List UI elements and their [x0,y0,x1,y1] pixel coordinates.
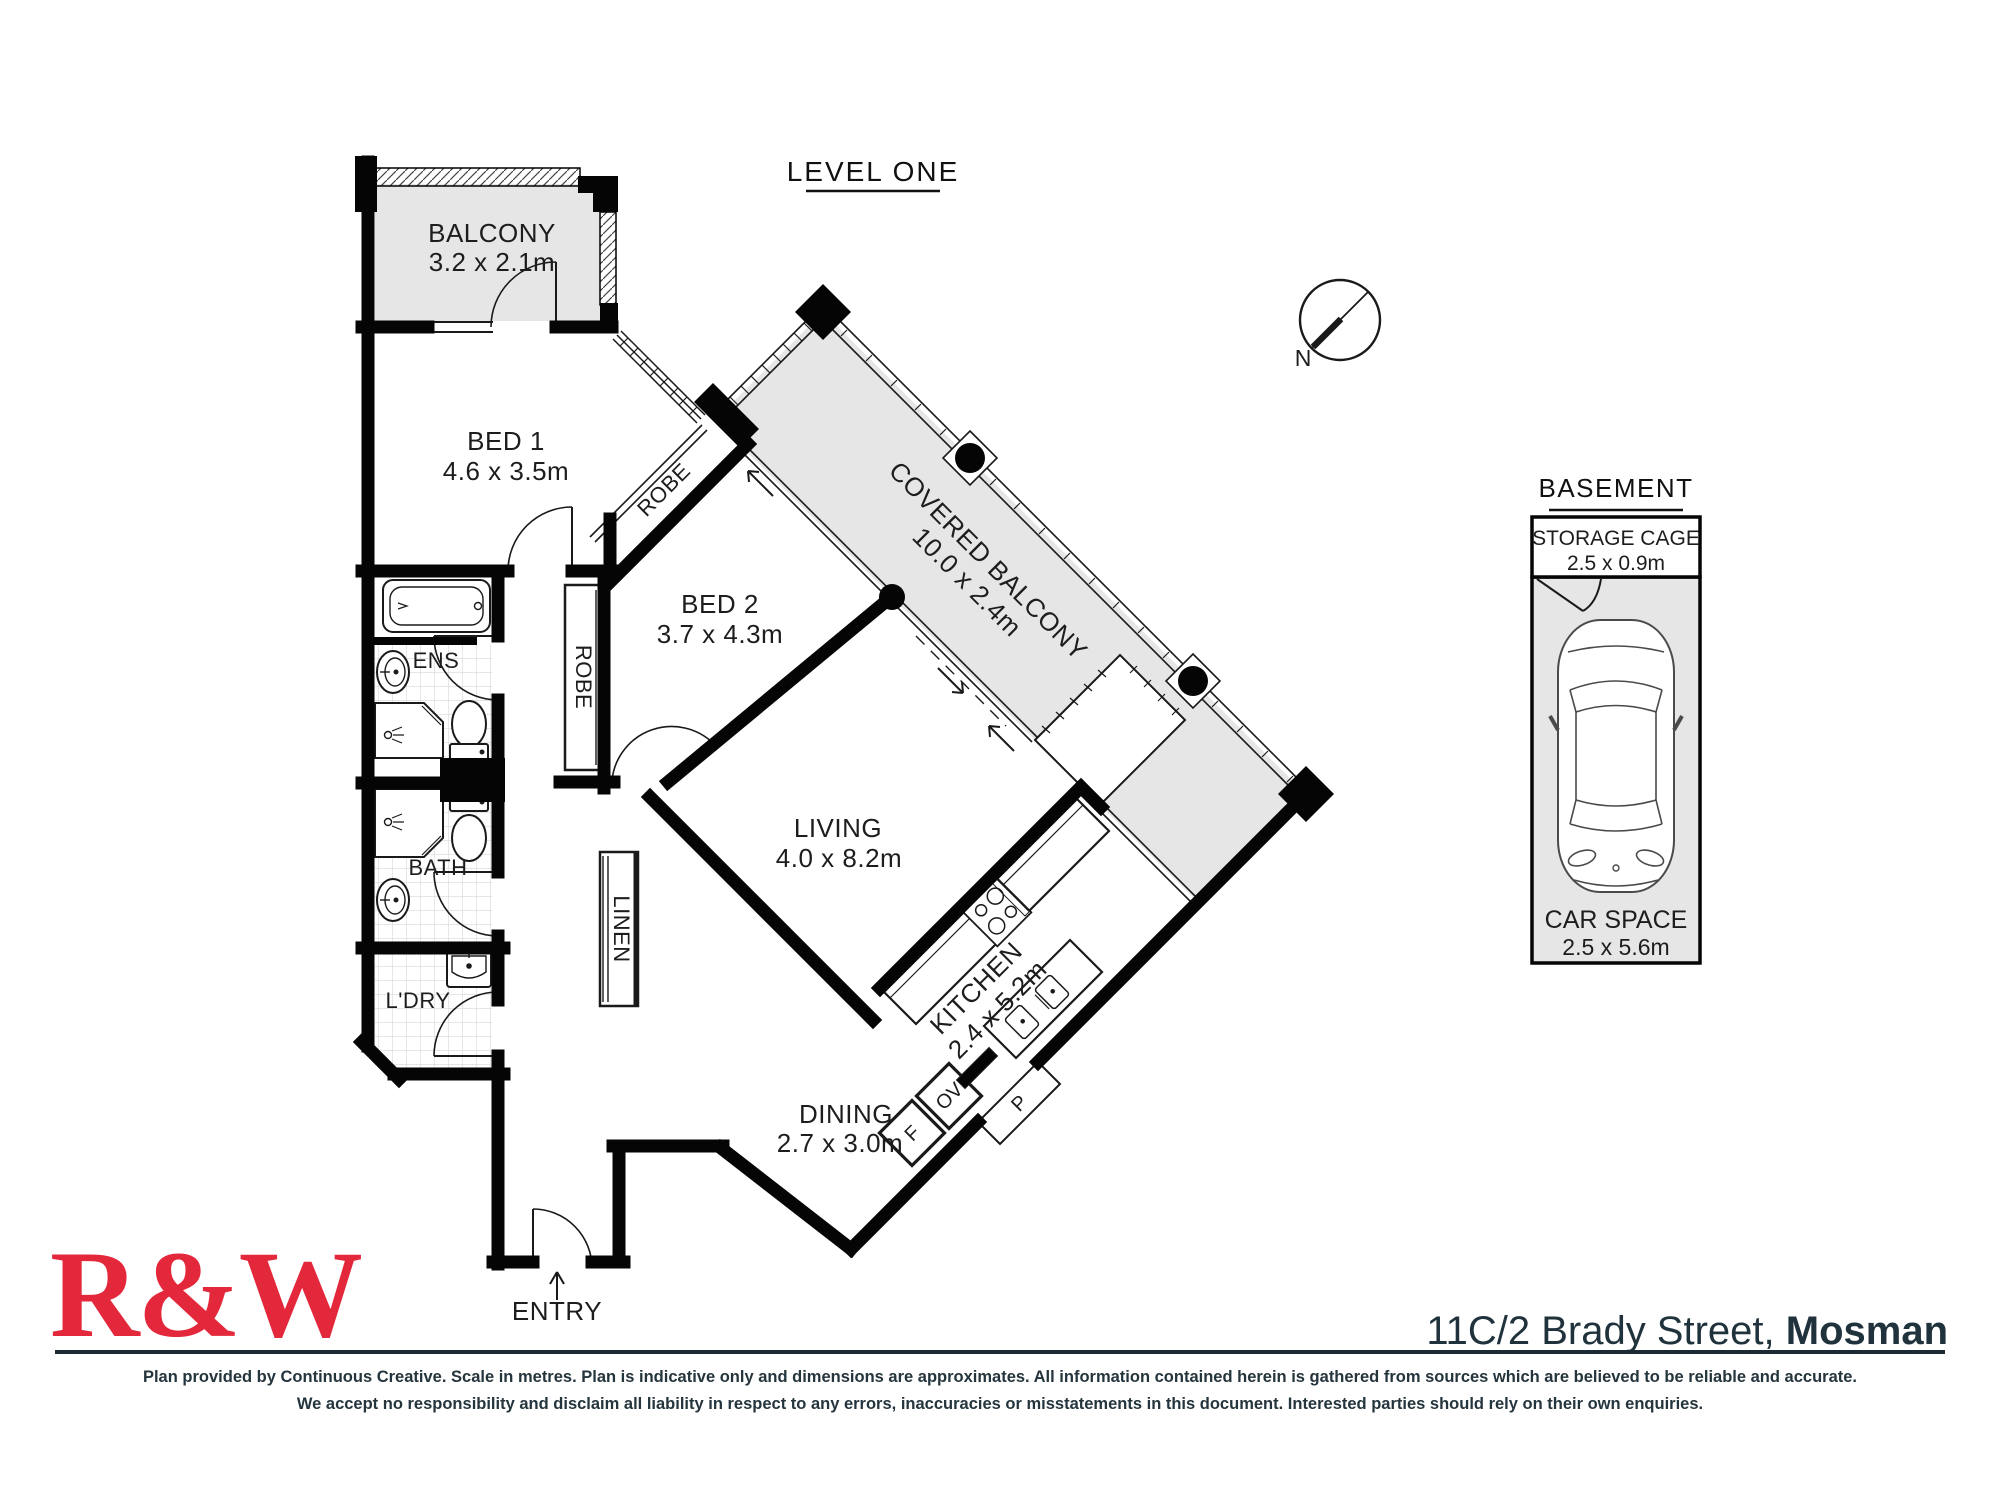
plumbing-niche [440,758,505,802]
balcony-rail-hatch [375,168,580,186]
car-icon [1550,620,1682,892]
toilet-icon [450,701,488,761]
car-space-label: CAR SPACE [1545,906,1688,934]
sink-icon [377,651,409,693]
floorplan-svg: N LEVEL ONE BALCONY 3.2 x 2.1m BED 1 4.6… [0,0,2000,1500]
shower-icon [375,703,443,758]
bed1-corner-window [613,331,705,423]
linen-front [603,856,608,1002]
compass-icon: N [1295,280,1380,371]
laundry-tub-icon [447,951,491,987]
bed1-label: BED 1 [467,426,545,456]
balcony-side-window [600,212,616,305]
robe2-label-g: ROBE [571,645,596,709]
car-space-dims: 2.5 x 5.6m [1562,934,1669,960]
dining-dims: 2.7 x 3.0m [777,1128,903,1158]
ldry-label: L'DRY [386,988,451,1013]
bath-label: BATH [408,855,467,880]
basement-section: BASEMENT STORAGE CAGE 2.5 x 0.9m CAR SPA… [1532,473,1700,963]
balcony-label: BALCONY [428,218,556,248]
storage-cage-label: STORAGE CAGE [1532,527,1700,550]
disclaimer-line2: We accept no responsibility and disclaim… [297,1395,1703,1413]
slider-arrow-icon [748,471,773,496]
bed2-label: BED 2 [681,589,759,619]
balcony-dims: 3.2 x 2.1m [429,247,555,277]
address: 11C/2 Brady Street, Mosman [1426,1309,1948,1353]
column-icon [879,584,905,610]
level-title: LEVEL ONE [787,156,960,187]
linen-label-g: LINEN [609,895,634,962]
wall-block [355,156,377,212]
rw-logo: R&W [50,1226,362,1363]
toilet-icon [450,794,488,861]
entry-label: ENTRY [512,1296,602,1326]
living-dims: 4.0 x 8.2m [776,843,902,873]
disclaimer-line1: Plan provided by Continuous Creative. Sc… [143,1368,1857,1386]
sink-icon [377,879,409,921]
robe2-label: ROBE [571,645,596,709]
storage-cage-dims: 2.5 x 0.9m [1567,552,1665,575]
door-arc-entry [533,1209,592,1268]
door-arc-bed1 [508,507,572,571]
bathtub-icon [383,580,490,632]
slider-arrow-icon [989,726,1014,751]
footer-divider [55,1350,1945,1354]
bed2-dims: 3.7 x 4.3m [657,619,783,649]
wall-block [600,303,618,333]
slider-arrow-icon [938,668,963,693]
shower-icon [375,789,443,857]
living-label: LIVING [794,813,882,843]
window-lines [428,322,493,332]
wall-vestibule [613,1146,723,1262]
address-street: 11C/2 Brady Street, [1426,1309,1785,1353]
footer: R&W 11C/2 Brady Street, Mosman Plan prov… [50,1226,1948,1413]
north-label: N [1295,345,1312,371]
bed1-dims: 4.6 x 3.5m [443,456,569,486]
column-icon [955,443,985,473]
wall-dining-v [721,1148,851,1249]
basement-title: BASEMENT [1538,473,1693,503]
dining-label: DINING [799,1099,893,1129]
column-icon [1178,666,1208,696]
linen-label: LINEN [609,895,634,962]
address-suburb: Mosman [1786,1309,1948,1353]
ens-label: ENS [413,648,460,673]
floorplan-page: N LEVEL ONE BALCONY 3.2 x 2.1m BED 1 4.6… [0,0,2000,1500]
